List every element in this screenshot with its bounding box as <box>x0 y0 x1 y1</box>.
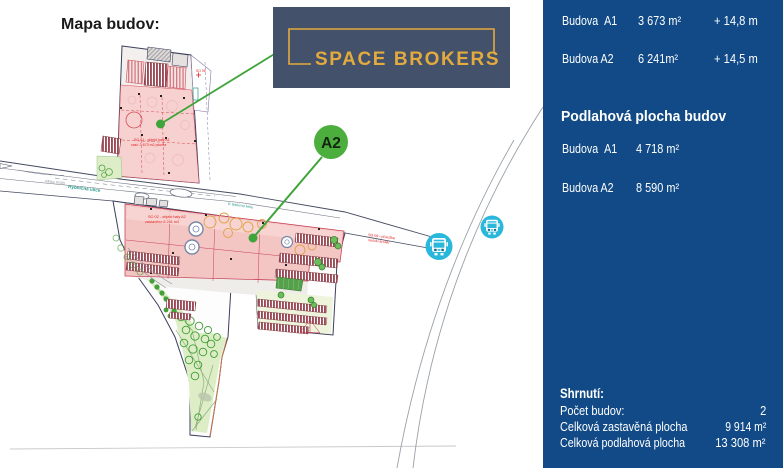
svg-text:zastavěno 6 241 m2: zastavěno 6 241 m2 <box>145 220 179 224</box>
svg-text:SO 01 - objekt haly A1: SO 01 - objekt haly A1 <box>134 138 170 142</box>
svg-text:A2: A2 <box>321 135 341 152</box>
svg-text:SO 02 - objekt haly A2: SO 02 - objekt haly A2 <box>148 215 186 219</box>
svg-text:SO 05: SO 05 <box>196 69 206 73</box>
svg-text:zast. 3 673 m2 plocha: zast. 3 673 m2 plocha <box>131 143 166 147</box>
svg-text:SPACE BROKERS: SPACE BROKERS <box>315 49 500 70</box>
